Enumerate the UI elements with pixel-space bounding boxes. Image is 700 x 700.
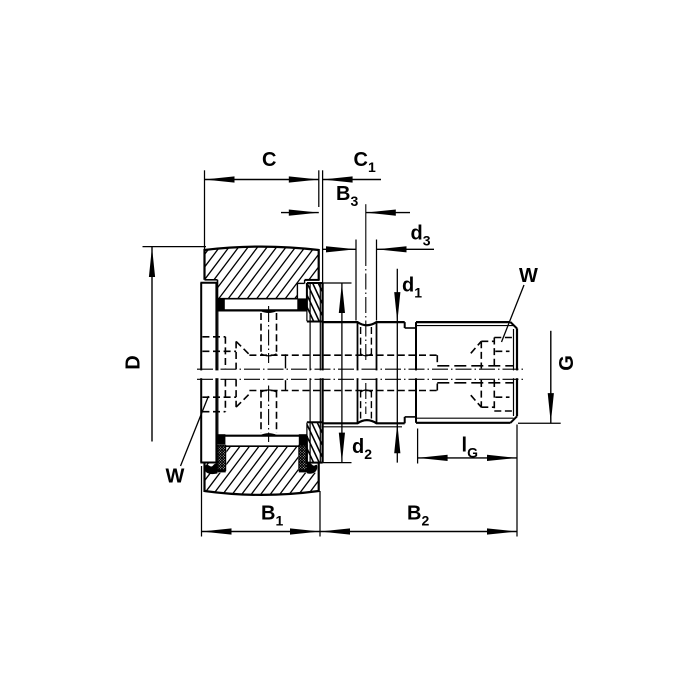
svg-text:C: C (262, 149, 276, 171)
svg-text:G: G (556, 355, 578, 371)
svg-text:W: W (519, 265, 538, 287)
svg-text:D: D (123, 355, 145, 369)
svg-text:W: W (166, 466, 185, 488)
